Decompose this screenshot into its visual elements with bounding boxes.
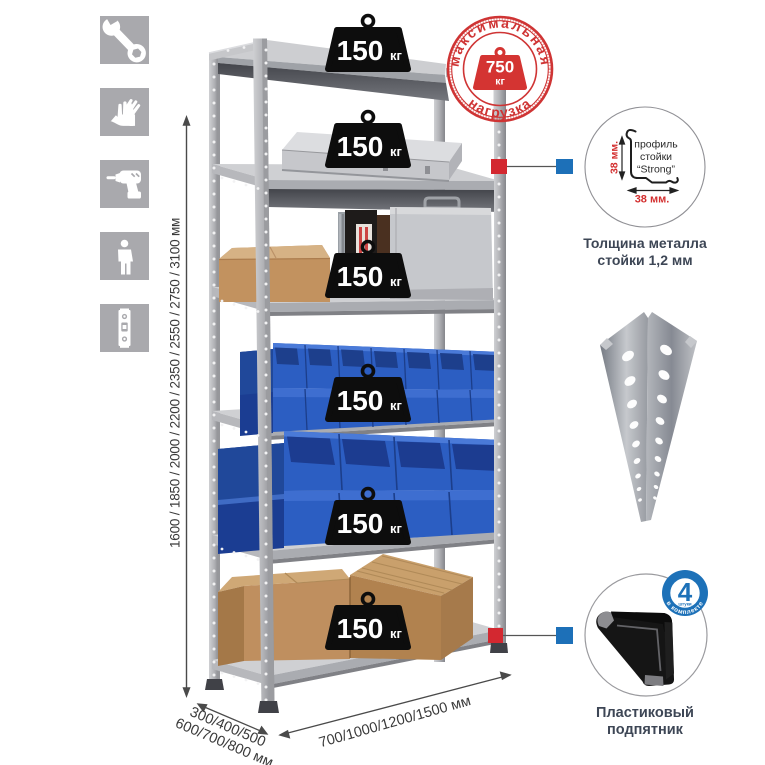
svg-text:38 мм.: 38 мм.	[609, 141, 621, 174]
svg-text:Толщина металла: Толщина металла	[583, 235, 707, 251]
svg-text:стойки 1,2 мм: стойки 1,2 мм	[597, 252, 692, 268]
svg-text:Пластиковый: Пластиковый	[596, 705, 694, 721]
svg-text:750: 750	[486, 58, 514, 77]
svg-text:“Strong”: “Strong”	[637, 164, 675, 176]
svg-text:1600 / 1850 / 2000 / 2200 / 23: 1600 / 1850 / 2000 / 2200 / 2350 / 2550 …	[168, 218, 183, 548]
svg-text:профиль: профиль	[634, 139, 678, 151]
svg-text:кг: кг	[495, 76, 505, 88]
svg-text:38 мм.: 38 мм.	[635, 194, 670, 206]
svg-text:штуки: штуки	[678, 602, 692, 607]
svg-text:подпятник: подпятник	[607, 722, 684, 738]
svg-text:стойки: стойки	[640, 151, 672, 163]
svg-text:700/1000/1200/1500 мм: 700/1000/1200/1500 мм	[317, 693, 472, 751]
